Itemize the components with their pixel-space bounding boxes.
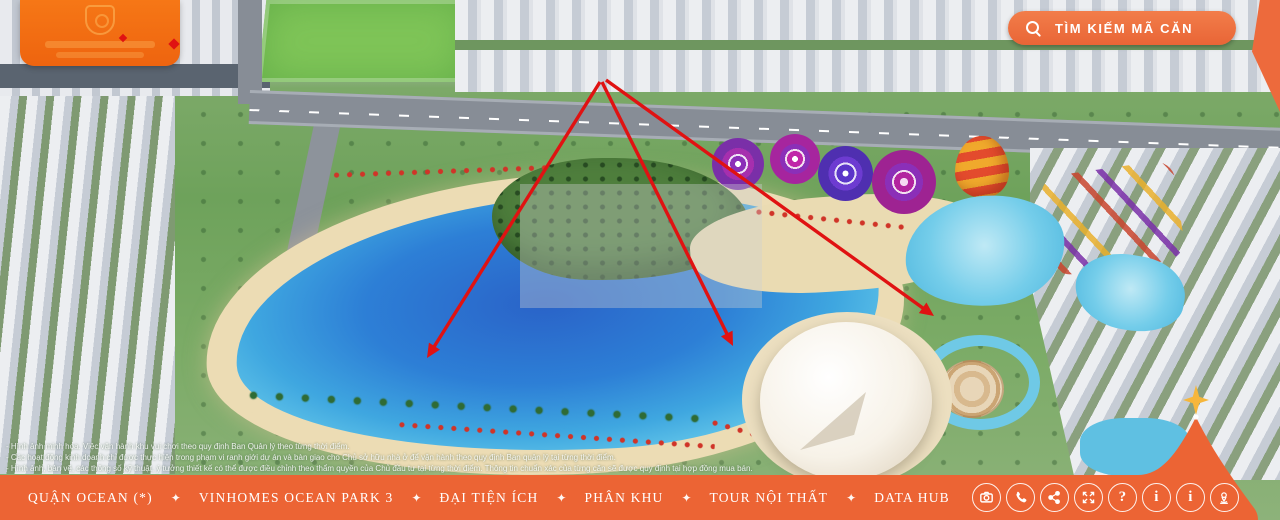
location-button[interactable] bbox=[1210, 483, 1239, 512]
nav-item-data-hub[interactable]: DATA HUB bbox=[874, 490, 950, 506]
nav-separator-icon: ✦ bbox=[846, 491, 856, 505]
nav-icon-row: ? i i bbox=[972, 483, 1239, 512]
nav-item-tour-noi-that[interactable]: TOUR NỘI THẤT bbox=[710, 490, 829, 506]
nav-separator-icon: ✦ bbox=[681, 491, 691, 505]
watermark-box bbox=[520, 184, 762, 308]
nav-item-vinhomes-ocean-park-3[interactable]: VINHOMES OCEAN PARK 3 bbox=[199, 490, 394, 506]
help-button[interactable]: ? bbox=[1108, 483, 1137, 512]
star-glint-icon bbox=[1193, 414, 1198, 419]
info-icon: i bbox=[1154, 489, 1158, 506]
logo-text-line bbox=[45, 41, 155, 48]
gold-star-icon bbox=[1183, 385, 1209, 415]
render-ride-purple-1 bbox=[712, 138, 764, 190]
phone-icon bbox=[1011, 488, 1030, 507]
nav-item-phan-khu[interactable]: PHÂN KHU bbox=[584, 490, 663, 506]
render-sports-field bbox=[258, 0, 469, 82]
brand-crest-icon bbox=[85, 5, 115, 35]
render-ride-purple-3 bbox=[818, 146, 873, 201]
share-icon bbox=[1045, 488, 1064, 507]
question-mark-icon: ? bbox=[1119, 489, 1127, 506]
sparkle-icon bbox=[168, 38, 179, 49]
info-button[interactable]: i bbox=[1142, 483, 1171, 512]
render-road-vertical bbox=[238, 0, 262, 104]
fullscreen-icon bbox=[1079, 488, 1098, 507]
phone-button[interactable] bbox=[1006, 483, 1035, 512]
render-ride-purple-2 bbox=[770, 134, 820, 184]
vr-360-icon bbox=[976, 487, 997, 508]
bottom-nav: QUẬN OCEAN (*) ✦ VINHOMES OCEAN PARK 3 ✦… bbox=[0, 475, 1252, 520]
logo-text-line bbox=[56, 52, 144, 58]
nav-separator-icon: ✦ bbox=[171, 491, 181, 505]
app-window: TÌM KIẾM MÃ CĂN - Hình ảnh minh họa. Việ… bbox=[0, 0, 1280, 520]
nav-item-quan-ocean[interactable]: QUẬN OCEAN (*) bbox=[28, 490, 153, 506]
nav-item-dai-tien-ich[interactable]: ĐẠI TIỆN ÍCH bbox=[440, 490, 539, 506]
brand-logo[interactable] bbox=[20, 0, 180, 66]
search-icon bbox=[1026, 21, 1041, 36]
nav-separator-icon: ✦ bbox=[411, 491, 421, 505]
info-icon: i bbox=[1188, 489, 1192, 506]
search-unit-button[interactable]: TÌM KIẾM MÃ CĂN bbox=[1008, 11, 1236, 45]
render-ride-purple-4 bbox=[872, 150, 936, 214]
share-button[interactable] bbox=[1040, 483, 1069, 512]
fullscreen-button[interactable] bbox=[1074, 483, 1103, 512]
info-alt-button[interactable]: i bbox=[1176, 483, 1205, 512]
location-pin-icon bbox=[1214, 488, 1234, 508]
nav-separator-icon: ✦ bbox=[556, 491, 566, 505]
search-label: TÌM KIẾM MÃ CĂN bbox=[1055, 21, 1193, 36]
render-slide-tower bbox=[955, 136, 1009, 198]
vr-360-button[interactable] bbox=[972, 483, 1001, 512]
